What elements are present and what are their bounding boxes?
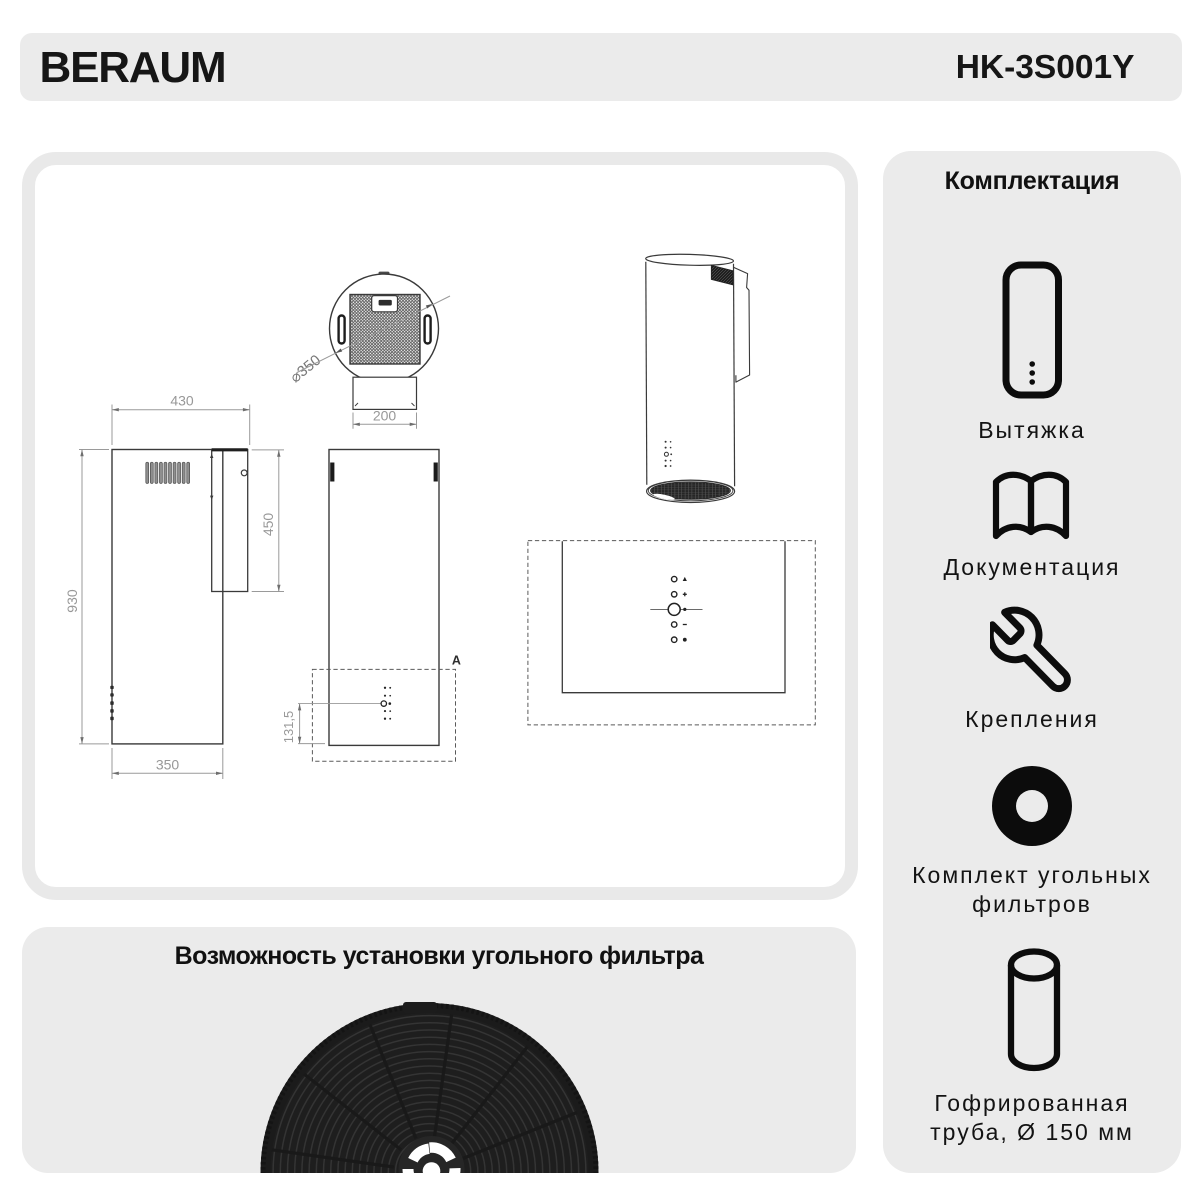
svg-text:930: 930 xyxy=(64,589,80,613)
svg-text:⌀350: ⌀350 xyxy=(287,352,324,387)
svg-text:430: 430 xyxy=(170,393,194,409)
svg-text:131,5: 131,5 xyxy=(281,711,296,744)
svg-text:450: 450 xyxy=(260,513,276,537)
svg-text:350: 350 xyxy=(156,756,180,772)
svg-text:200: 200 xyxy=(373,407,397,423)
svg-text:A: A xyxy=(452,654,461,668)
